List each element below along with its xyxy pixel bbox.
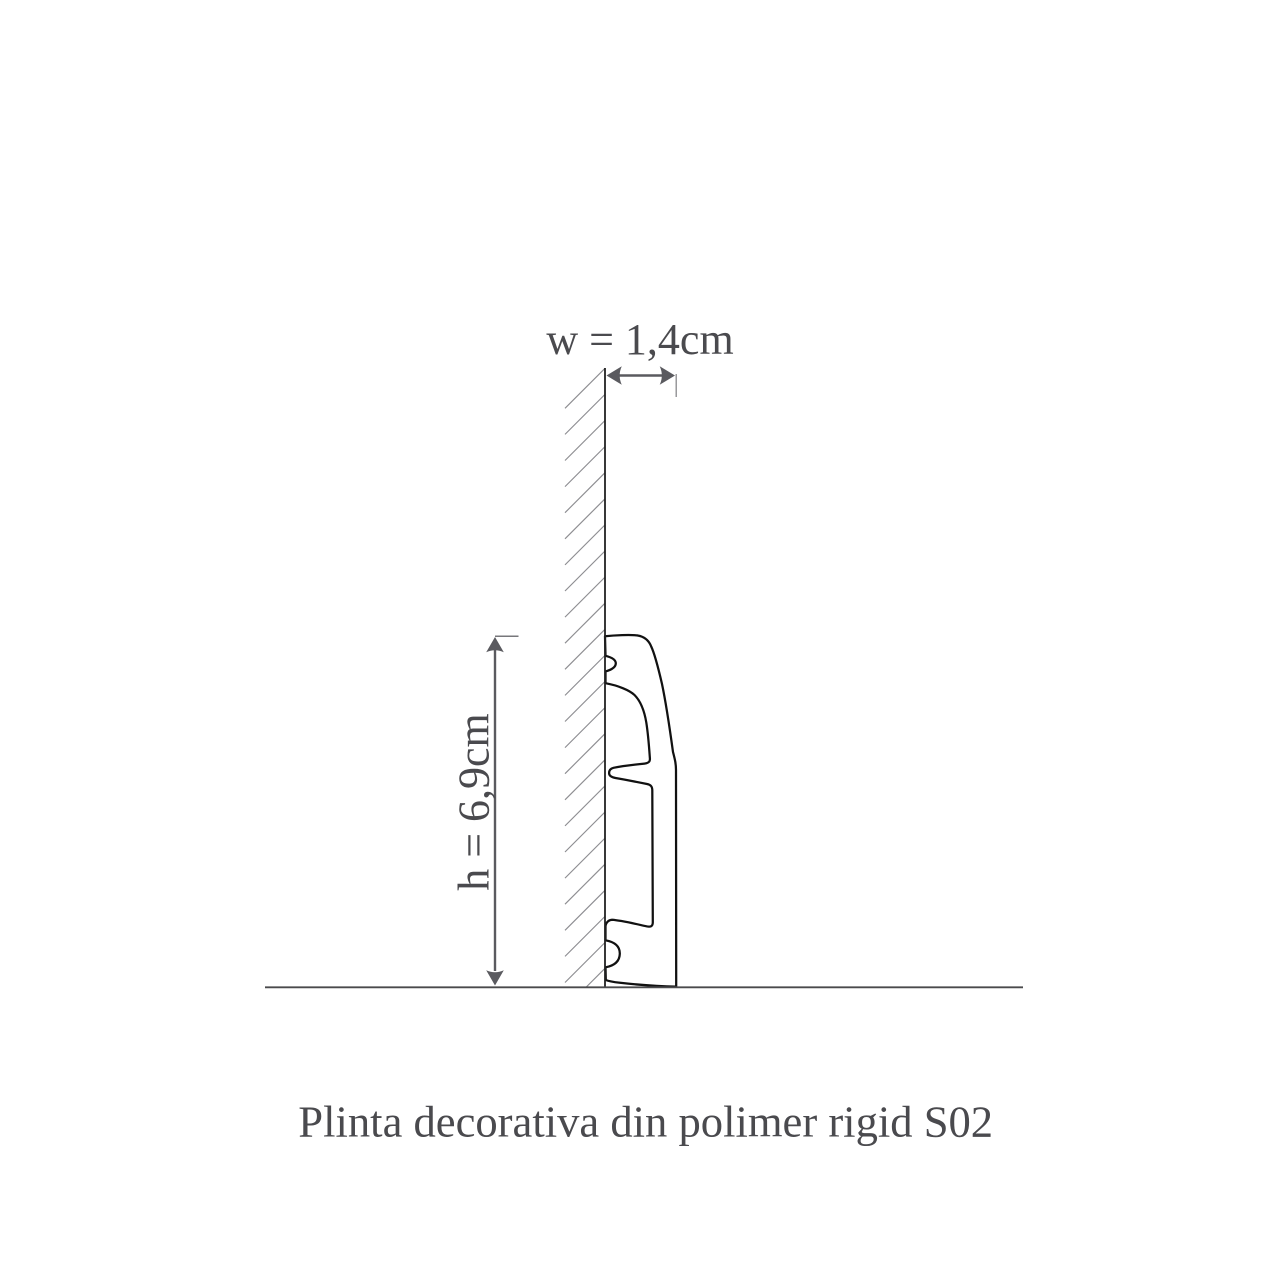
svg-text:w = 1,4cm: w = 1,4cm [546,315,733,364]
svg-text:h = 6,9cm: h = 6,9cm [450,713,499,891]
svg-text:Plinta decorativa din polimer: Plinta decorativa din polimer rigid S02 [298,1096,993,1146]
